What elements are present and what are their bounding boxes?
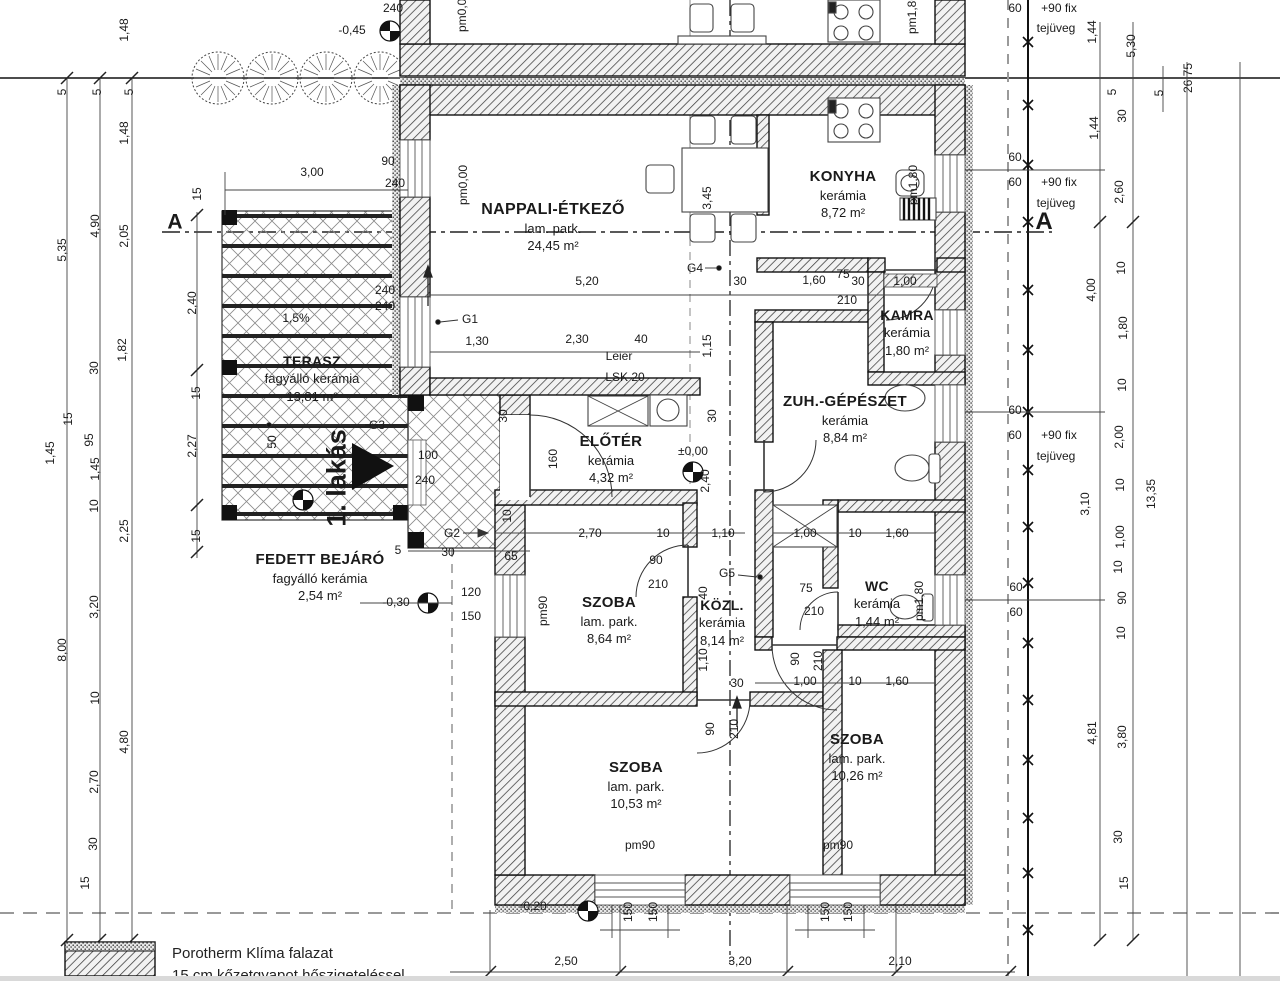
door-room1 — [636, 545, 688, 597]
kitchen-sink-icon — [896, 170, 924, 196]
terrace — [222, 210, 408, 520]
window-wc-east — [935, 575, 965, 625]
pantry-shelf-icon — [884, 274, 937, 287]
floor-plan-drawing — [0, 0, 1280, 981]
washing-machine-icon — [650, 395, 687, 426]
terrace-door — [400, 297, 430, 367]
bottom-edge-bar — [0, 976, 1280, 981]
front-door — [500, 415, 612, 500]
level-marker-icon — [683, 462, 703, 482]
floor-plan-page: 240-0,45pm1,80pm0,005551,481,485,354,902… — [0, 0, 1280, 981]
legend-swatch — [65, 942, 155, 976]
stove-icon — [828, 98, 880, 142]
window-room1-west — [495, 575, 525, 637]
window-shower-east — [935, 385, 965, 442]
washbasin-icon — [885, 385, 925, 411]
dim-ticks — [61, 72, 1139, 978]
level-marker-icon — [380, 21, 400, 41]
door-wc — [800, 592, 838, 630]
level-marker-icon — [578, 901, 598, 921]
window-kitchen-east — [935, 155, 965, 212]
legend-line-1: Porotherm Klíma falazat — [172, 943, 405, 965]
door-room2 — [697, 700, 750, 753]
wc-toilet-icon — [890, 594, 933, 621]
radiator-icon — [900, 198, 936, 220]
window-living-west — [400, 140, 430, 197]
terrace-level-marker-icon — [293, 490, 313, 510]
window-pantry-east — [935, 310, 965, 355]
toilet-icon — [895, 454, 940, 483]
porch-window — [408, 440, 426, 505]
dining-table-icon — [682, 148, 768, 212]
covered-entry-porch — [408, 395, 500, 548]
window-room3-south — [790, 875, 880, 905]
wardrobe-icon — [588, 396, 648, 426]
window-room2-south — [595, 875, 685, 905]
mirrored-unit-furniture — [678, 0, 880, 44]
door-shower — [764, 440, 816, 492]
shower-tray-icon — [773, 505, 837, 547]
